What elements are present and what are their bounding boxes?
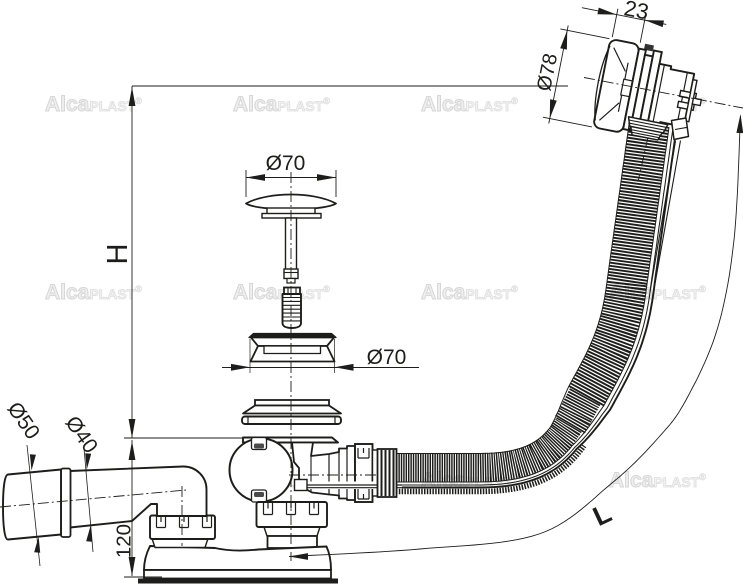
svg-text:Ø70: Ø70 (266, 152, 306, 175)
svg-text:120: 120 (112, 524, 135, 558)
svg-text:H: H (102, 244, 134, 265)
svg-text:Ø70: Ø70 (367, 346, 407, 369)
